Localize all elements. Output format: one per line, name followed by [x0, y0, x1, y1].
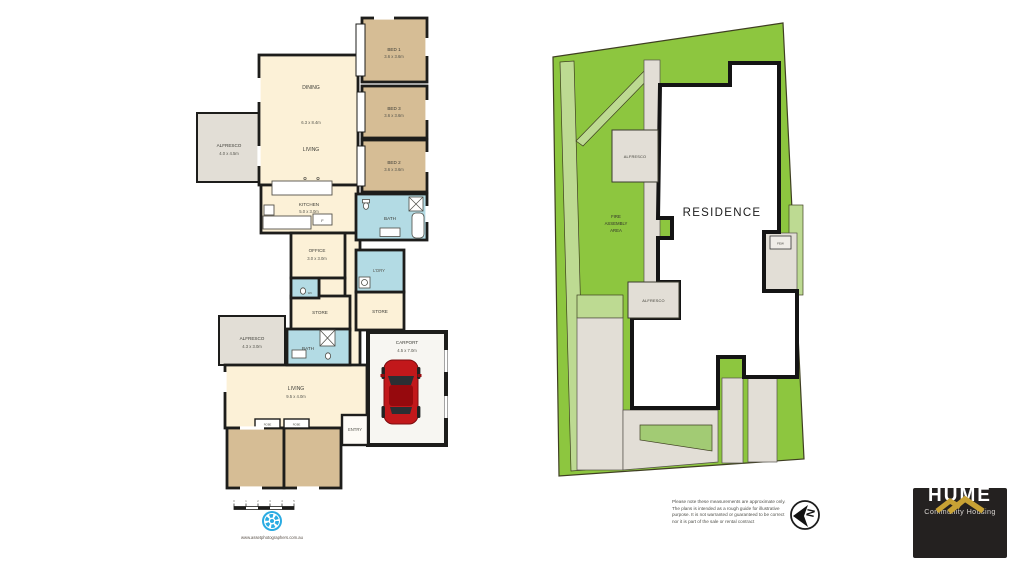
car-windshield — [388, 376, 414, 385]
robe-niches — [356, 24, 365, 186]
vanity — [380, 228, 400, 237]
walkway-col-1 — [722, 378, 743, 463]
label-kitchen-dims: 5.0 x 3.0m — [299, 209, 319, 214]
scale-seg — [234, 507, 246, 510]
toilet-tank — [363, 200, 370, 203]
photographer-url: www.assetphotographers.com.au — [241, 535, 304, 540]
window — [223, 372, 226, 392]
robe-niche — [357, 92, 365, 132]
compass: N — [787, 496, 823, 534]
label-store-right: STORE — [372, 309, 388, 314]
window — [425, 100, 428, 120]
svg-text:ASSEMBLY: ASSEMBLY — [605, 221, 628, 226]
car-rear-window — [390, 407, 412, 414]
scale-numbers: 0 1 2 3 4 5 — [233, 499, 295, 503]
svg-text:2: 2 — [257, 499, 259, 503]
label-site-alfresco-lower: ALFRESCO — [642, 298, 665, 303]
bathtub — [412, 213, 424, 238]
scale-bar: 0 1 2 3 4 5 — [233, 499, 295, 510]
window — [374, 16, 394, 19]
kitchen-island — [272, 181, 332, 195]
label-store-left: STORE — [312, 310, 328, 315]
room-wc — [291, 278, 319, 298]
label-wc: WC — [308, 291, 313, 295]
page: BED 1 3.6 x 3.6m BED 3 3.6 x 3.6m BED 2 … — [0, 0, 1024, 576]
hume-logo: HUME Community Housing — [913, 488, 1007, 558]
car-wheel — [417, 406, 420, 418]
window — [240, 486, 262, 489]
label-few: FEW — [777, 242, 784, 246]
svg-text:1: 1 — [245, 499, 247, 503]
label-residence: RESIDENCE — [683, 207, 762, 219]
scale-ticks — [234, 504, 294, 507]
car-mirror — [418, 374, 422, 377]
label-entry: ENTRY — [348, 427, 362, 432]
robe-niche — [357, 146, 365, 186]
label-kitchen: KITCHEN — [299, 202, 319, 207]
label-carport-dims: 4.5 x 7.0m — [397, 348, 417, 353]
washer — [359, 277, 370, 288]
label-bed1: BED 1 — [387, 47, 401, 52]
window — [444, 350, 447, 372]
window — [240, 426, 264, 429]
site-plan: RESIDENCE ALFRESCO ALFRESCO FIRE ASSEMBL… — [545, 3, 815, 483]
window — [425, 206, 428, 222]
label-office-dims: 3.0 x 3.0m — [307, 256, 327, 261]
window — [425, 38, 428, 56]
label-bed3-dims: 3.6 x 3.6m — [384, 113, 404, 118]
car-wheel — [382, 406, 385, 418]
label-bed2: BED 2 — [387, 160, 401, 165]
scale-seg — [282, 507, 294, 510]
toilet — [300, 288, 305, 294]
label-great-dims: 6.3 x 8.4m — [301, 120, 321, 125]
label-bath-top: BATH — [384, 216, 396, 221]
room-bed3 — [362, 86, 427, 138]
window — [297, 486, 319, 489]
svg-text:AREA: AREA — [610, 228, 622, 233]
label-bed1-dims: 3.6 x 3.6m — [384, 54, 404, 59]
window — [444, 396, 447, 418]
label-alfresco-left: ALFRESCO — [217, 143, 242, 148]
kitchen-counter — [263, 216, 311, 229]
photographer-logo-icon — [262, 511, 282, 531]
robe-niche — [356, 24, 365, 76]
disclaimer-text: Please note these measurements are appro… — [672, 499, 786, 526]
toilet — [363, 203, 368, 210]
toilet — [325, 353, 330, 359]
label-office: OFFICE — [309, 248, 326, 253]
svg-text:5: 5 — [293, 499, 295, 503]
label-alfresco-lower: ALFRESCO — [240, 336, 265, 341]
room-bath-lower — [287, 329, 350, 365]
roof-chevrons-icon — [913, 488, 1007, 514]
scale-seg — [258, 507, 270, 510]
label-dining: DINING — [302, 85, 320, 91]
window — [257, 146, 260, 166]
room-bed2 — [362, 140, 427, 192]
label-living-upper: LIVING — [303, 147, 320, 153]
room-bed5 — [227, 428, 284, 488]
car-wheel — [382, 367, 385, 379]
svg-text:3: 3 — [269, 499, 271, 503]
garden-strip-mid — [577, 295, 623, 318]
label-living-lower: LIVING — [288, 386, 305, 392]
label-site-alfresco-upper: ALFRESCO — [624, 154, 647, 159]
vanity — [292, 350, 306, 358]
floor-plan: BED 1 3.6 x 3.6m BED 3 3.6 x 3.6m BED 2 … — [188, 3, 460, 548]
svg-text:FIRE: FIRE — [611, 214, 621, 219]
svg-text:4: 4 — [281, 499, 283, 503]
label-living-lower-dims: 9.5 x 4.0m — [286, 394, 306, 399]
label-laundry: L'DRY — [373, 268, 385, 273]
label-bed2-dims: 3.6 x 3.6m — [384, 167, 404, 172]
walkway-col-2 — [748, 378, 777, 462]
walkway-left-block — [577, 318, 623, 470]
label-robe: ROBE — [293, 423, 301, 427]
car — [381, 360, 422, 424]
car-mirror — [381, 374, 385, 377]
label-robe: ROBE — [264, 423, 272, 427]
window — [425, 152, 428, 172]
car-wheel — [417, 367, 420, 379]
label-bed3: BED 3 — [387, 106, 401, 111]
label-alfresco-left-dims: 4.0 x 4.5m — [219, 151, 239, 156]
car-roof — [389, 385, 413, 406]
label-bath-lower: BATH — [302, 346, 314, 351]
oven-box — [264, 205, 274, 215]
svg-text:0: 0 — [233, 499, 235, 503]
window — [257, 78, 260, 102]
room-bed4 — [284, 428, 341, 488]
label-alfresco-lower-dims: 4.3 x 3.0m — [242, 344, 262, 349]
label-carport: CARPORT — [396, 340, 419, 345]
